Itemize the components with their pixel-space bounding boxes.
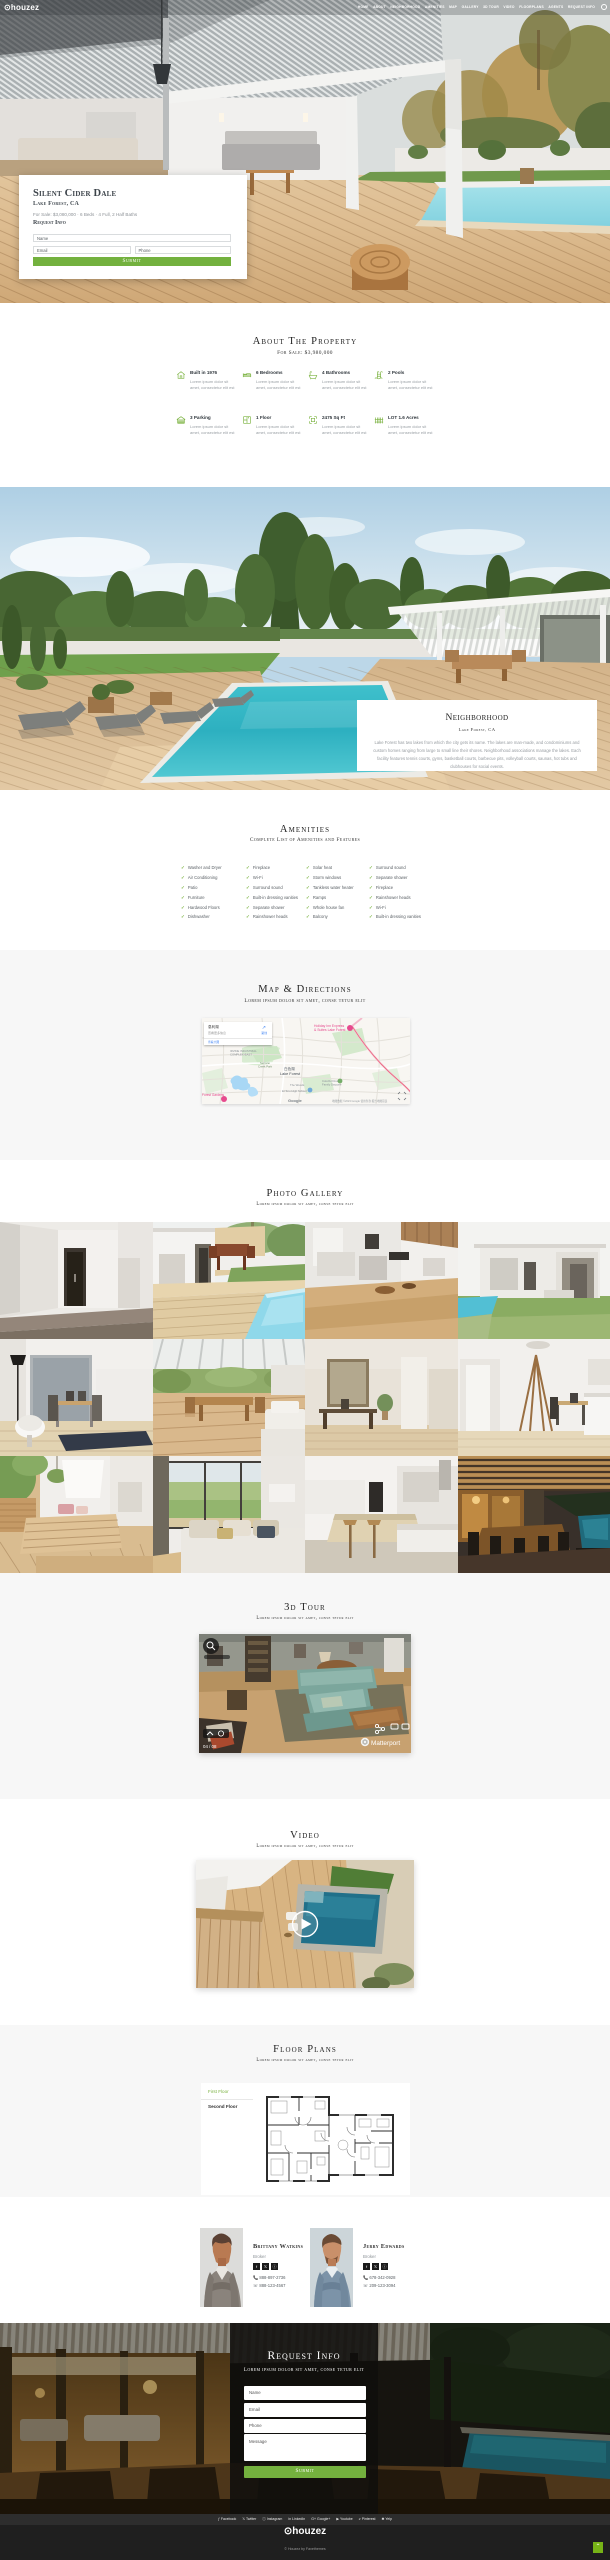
svg-text:& Suites Lake Forest: & Suites Lake Forest: [314, 1028, 346, 1032]
svg-text:白色湖: 白色湖: [284, 1066, 295, 1071]
svg-text:Google: Google: [288, 1098, 303, 1103]
svg-text:04 / 08: 04 / 08: [203, 1744, 217, 1749]
svg-text:COMPLEX-EAST: COMPLEX-EAST: [230, 1053, 252, 1057]
svg-text:Matterport: Matterport: [371, 1740, 400, 1747]
svg-text:Creek Park: Creek Park: [258, 1065, 273, 1069]
svg-text:The Woods: The Woods: [290, 1083, 305, 1087]
svg-text:Lake Forest: Lake Forest: [280, 1072, 301, 1076]
svg-text:Forest Gardens: Forest Gardens: [202, 1093, 225, 1097]
svg-text:El Toro High School: El Toro High School: [282, 1089, 307, 1093]
svg-text:地图数据 ©2023 Google 使用条款 报告地图错误: 地图数据 ©2023 Google 使用条款 报告地图错误: [332, 1099, 388, 1103]
